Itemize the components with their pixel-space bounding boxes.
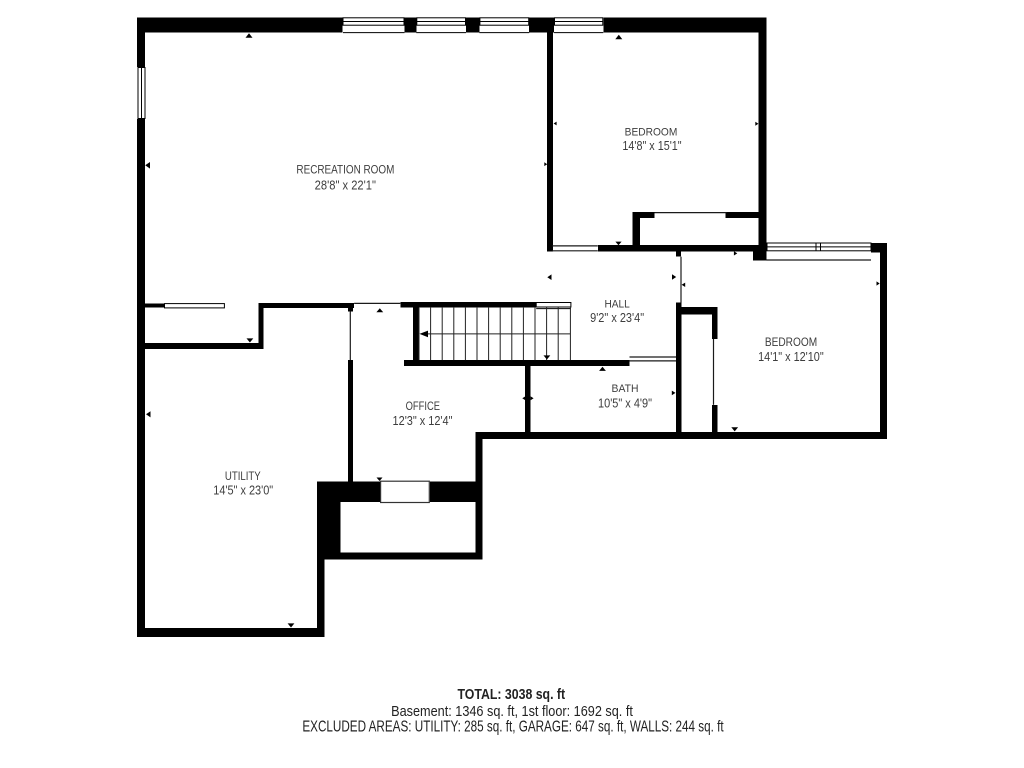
svg-text:14'1" x 12'10": 14'1" x 12'10" <box>758 349 824 364</box>
svg-text:14'8" x 15'1": 14'8" x 15'1" <box>622 138 681 153</box>
svg-text:HALL: HALL <box>604 298 629 311</box>
svg-text:BEDROOM: BEDROOM <box>625 126 678 139</box>
svg-text:Basement: 1346 sq. ft, 1st flo: Basement: 1346 sq. ft, 1st floor: 1692 s… <box>391 703 633 719</box>
svg-text:RECREATION ROOM: RECREATION ROOM <box>296 164 394 177</box>
svg-text:UTILITY: UTILITY <box>225 470 261 483</box>
svg-text:OFFICE: OFFICE <box>406 401 440 413</box>
svg-text:EXCLUDED AREAS: UTILITY: 285 s: EXCLUDED AREAS: UTILITY: 285 sq. ft, GAR… <box>302 718 723 735</box>
svg-text:BATH: BATH <box>612 383 639 396</box>
svg-text:14'5" x 23'0": 14'5" x 23'0" <box>213 483 273 498</box>
svg-text:BEDROOM: BEDROOM <box>765 336 817 349</box>
svg-text:28'8" x 22'1": 28'8" x 22'1" <box>315 178 376 193</box>
svg-text:12'3" x 12'4": 12'3" x 12'4" <box>393 413 453 428</box>
svg-text:10'5" x 4'9": 10'5" x 4'9" <box>598 396 652 411</box>
svg-text:TOTAL: 3038 sq. ft: TOTAL: 3038 sq. ft <box>457 686 565 702</box>
svg-text:9'2" x 23'4": 9'2" x 23'4" <box>590 310 644 325</box>
